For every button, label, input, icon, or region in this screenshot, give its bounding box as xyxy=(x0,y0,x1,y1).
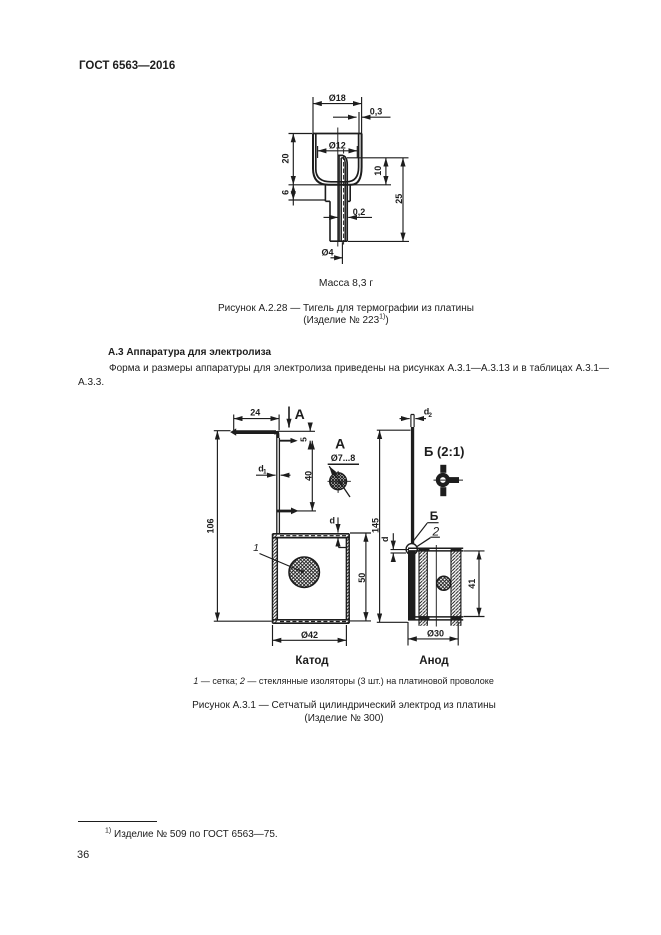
svg-text:d: d xyxy=(330,516,336,526)
svg-text:А: А xyxy=(335,436,345,452)
svg-text:1: 1 xyxy=(253,542,259,554)
svg-text:Ø30: Ø30 xyxy=(427,628,444,638)
svg-text:Катод: Катод xyxy=(295,655,329,667)
svg-text:25: 25 xyxy=(394,194,404,204)
svg-text:1: 1 xyxy=(263,468,267,475)
svg-text:10: 10 xyxy=(373,166,383,176)
svg-text:Ø12: Ø12 xyxy=(329,140,346,150)
svg-text:2: 2 xyxy=(428,412,432,419)
svg-text:Ø7...8: Ø7...8 xyxy=(331,453,356,463)
svg-text:Ø4: Ø4 xyxy=(321,247,333,257)
svg-text:24: 24 xyxy=(250,408,260,418)
svg-text:106: 106 xyxy=(206,518,216,533)
svg-text:Ø18: Ø18 xyxy=(329,93,346,103)
svg-text:50: 50 xyxy=(357,573,367,583)
svg-text:6: 6 xyxy=(281,190,291,195)
svg-text:20: 20 xyxy=(281,153,291,163)
svg-text:2: 2 xyxy=(431,524,439,538)
svg-text:А: А xyxy=(295,406,305,422)
svg-text:Ø42: Ø42 xyxy=(301,630,318,640)
svg-text:145: 145 xyxy=(370,518,380,533)
svg-text:Анод: Анод xyxy=(419,655,449,667)
svg-text:40: 40 xyxy=(303,471,313,481)
svg-text:Б: Б xyxy=(430,509,439,523)
svg-text:5: 5 xyxy=(299,437,309,442)
svg-text:0,3: 0,3 xyxy=(370,107,383,117)
svg-text:0,2: 0,2 xyxy=(353,207,366,217)
svg-text:Б (2:1): Б (2:1) xyxy=(424,444,464,459)
svg-text:d: d xyxy=(380,537,390,543)
svg-text:41: 41 xyxy=(467,579,477,589)
